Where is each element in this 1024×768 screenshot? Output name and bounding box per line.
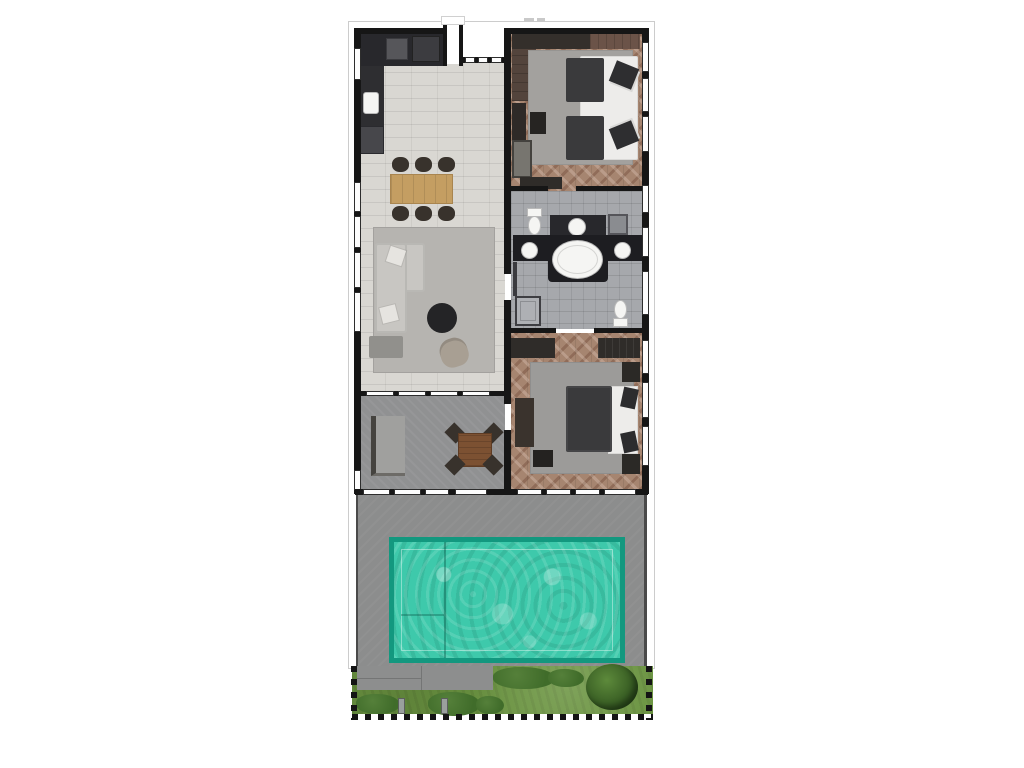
window bbox=[354, 470, 361, 490]
toilet-lower bbox=[613, 300, 628, 327]
sliding-door bbox=[398, 391, 426, 396]
window bbox=[642, 116, 649, 152]
bush bbox=[493, 667, 555, 689]
window bbox=[642, 185, 649, 213]
shower-tray-line bbox=[520, 301, 536, 321]
pool-inner-outline bbox=[401, 549, 613, 651]
tree bbox=[586, 664, 638, 710]
cooktop bbox=[386, 38, 408, 60]
sliding-door bbox=[462, 391, 490, 396]
bath-niche bbox=[608, 214, 628, 235]
wall-center bbox=[504, 300, 511, 404]
boundary-dashed-left bbox=[351, 666, 357, 720]
bedroom2-wardrobe-left bbox=[511, 338, 555, 358]
window bbox=[354, 182, 361, 212]
wall-center bbox=[504, 430, 511, 494]
window bbox=[642, 426, 649, 466]
deck-edge bbox=[356, 495, 358, 668]
wall-center bbox=[504, 28, 511, 274]
window bbox=[642, 271, 649, 315]
terrace-daybed bbox=[371, 416, 405, 476]
bedroom1-wardrobe-door bbox=[590, 33, 640, 49]
window bbox=[642, 227, 649, 257]
bush bbox=[428, 692, 480, 716]
basin bbox=[568, 218, 586, 236]
window bbox=[354, 252, 361, 288]
bedroom2-bed bbox=[566, 386, 612, 452]
wall-bed1-bath bbox=[511, 186, 548, 191]
window bbox=[642, 382, 649, 418]
bedroom2-bench bbox=[533, 450, 553, 467]
wall-bed1-bath bbox=[576, 186, 642, 191]
partition-stub bbox=[513, 262, 517, 296]
wall-bath-bed2 bbox=[511, 328, 556, 333]
floor-plan bbox=[0, 0, 1024, 768]
bedroom1-duvet bbox=[566, 116, 604, 160]
deck-edge bbox=[644, 495, 647, 668]
window bbox=[642, 340, 649, 374]
bush bbox=[356, 694, 400, 714]
dining-table bbox=[390, 174, 453, 204]
dining-chair bbox=[392, 157, 409, 172]
window bbox=[478, 57, 488, 63]
bush bbox=[548, 669, 584, 687]
dining-chair bbox=[438, 157, 455, 172]
bedroom1-duvet bbox=[566, 58, 604, 102]
fridge bbox=[359, 126, 384, 154]
shower bbox=[515, 296, 541, 326]
entry-step bbox=[441, 16, 465, 25]
vanity-sink-right bbox=[614, 242, 631, 259]
window bbox=[354, 48, 361, 80]
toilet-bowl bbox=[528, 216, 541, 235]
bedroom2-nightstand bbox=[622, 454, 640, 474]
walkway-seam bbox=[421, 666, 422, 690]
bathtub bbox=[552, 240, 603, 279]
sliding-door bbox=[430, 391, 458, 396]
bedroom2-wardrobe-right bbox=[598, 338, 640, 358]
window bbox=[354, 292, 361, 332]
entry-notch-exterior bbox=[463, 22, 504, 57]
window bbox=[642, 42, 649, 72]
wall-top-right bbox=[505, 28, 648, 34]
dining-chair bbox=[415, 157, 432, 172]
window bbox=[354, 216, 361, 248]
bedroom2-dresser bbox=[515, 398, 534, 447]
dimension-annotation bbox=[524, 18, 534, 22]
kitchen-sink bbox=[363, 92, 379, 114]
window bbox=[491, 57, 502, 63]
entry-door-opening bbox=[447, 24, 459, 64]
bush bbox=[476, 696, 504, 714]
garden-post bbox=[441, 698, 448, 714]
garden-walkway bbox=[357, 666, 493, 690]
bedroom1-dresser bbox=[512, 140, 532, 178]
wall-top-left bbox=[355, 28, 443, 34]
toilet-upper bbox=[527, 208, 542, 235]
pool-steps-line bbox=[401, 614, 444, 616]
window bbox=[465, 57, 475, 63]
boundary-dashed-right bbox=[646, 666, 652, 720]
bedroom1-bench bbox=[512, 103, 526, 143]
dining-chair bbox=[415, 206, 432, 221]
pool-steps-divider bbox=[444, 542, 446, 658]
toilet-bowl bbox=[614, 300, 627, 319]
bedroom2-nightstand bbox=[622, 362, 640, 382]
boundary-dashed-bottom bbox=[352, 714, 653, 720]
pool bbox=[389, 537, 625, 663]
dining-chair bbox=[392, 206, 409, 221]
ottoman bbox=[369, 336, 403, 358]
dining-chair bbox=[438, 206, 455, 221]
wall-bath-bed2 bbox=[594, 328, 642, 333]
coffee-table bbox=[427, 303, 457, 333]
kitchen-appliance bbox=[412, 36, 440, 62]
garden-post bbox=[398, 698, 405, 714]
sliding-door bbox=[366, 391, 394, 396]
walkway-seam bbox=[357, 678, 421, 679]
dimension-annotation bbox=[537, 18, 545, 22]
vanity-sink-left bbox=[521, 242, 538, 259]
toilet-tank bbox=[613, 318, 628, 327]
bathtub-inner-ring bbox=[557, 245, 598, 274]
bedroom1-side-table bbox=[530, 112, 546, 134]
pool-water bbox=[394, 542, 620, 658]
window bbox=[642, 78, 649, 112]
